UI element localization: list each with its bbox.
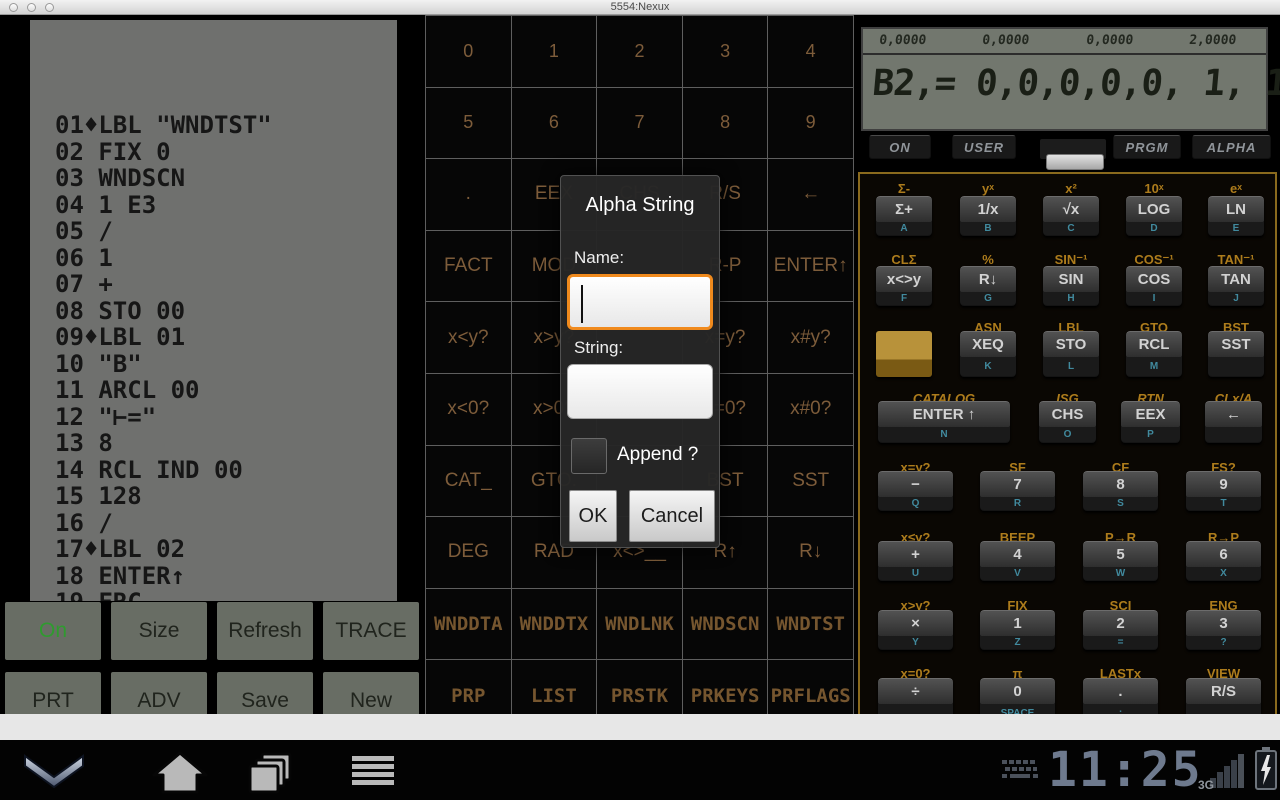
window-titlebar: 5554:Nexux: [0, 0, 1280, 15]
calc-key-eex[interactable]: EEXP: [1121, 401, 1180, 443]
program-line: 04 1 E3: [55, 192, 397, 219]
name-field-label: Name:: [574, 248, 624, 268]
calc-key-sub-label: [1208, 357, 1264, 376]
calc-key-7[interactable]: 7R: [980, 471, 1055, 511]
calc-key-sub-label: B: [960, 222, 1016, 235]
function-grid-key[interactable]: 3: [683, 16, 768, 87]
calc-key-label: 3: [1186, 610, 1261, 636]
calc-key-ln[interactable]: LNE: [1208, 196, 1264, 236]
calc-key-5[interactable]: 5W: [1083, 541, 1158, 581]
function-grid-key[interactable]: 4: [768, 16, 853, 87]
program-line: 08 STO 00: [55, 298, 397, 325]
calc-key-label: R↓: [960, 266, 1016, 292]
function-grid-key[interactable]: 0: [426, 16, 511, 87]
calc-key-sub-label: SPACE: [980, 704, 1055, 714]
program-line: 19 FRC: [55, 589, 397, 601]
calc-key-label: −: [878, 471, 953, 497]
calc-key--[interactable]: Σ+A: [876, 196, 932, 236]
calc-key-rcl[interactable]: RCLM: [1126, 331, 1182, 377]
program-line: 01♦LBL "WNDTST": [55, 112, 397, 139]
network-type-label: 3G: [1198, 778, 1214, 792]
lcd-stack-value: 0,0000: [1085, 33, 1134, 53]
calc-key-sub-label: T: [1186, 497, 1261, 510]
string-field-label: String:: [574, 338, 623, 358]
cancel-button[interactable]: Cancel: [629, 490, 715, 542]
dialog-title: Alpha String: [561, 194, 719, 217]
calc-key-label: 1/x: [960, 196, 1016, 222]
function-grid-key[interactable]: ←: [768, 159, 853, 230]
calculator-lcd: 0,00000,00000,00002,0000 B2,= 0,0,0,0,0,…: [861, 27, 1268, 131]
function-grid-key[interactable]: 2: [597, 16, 682, 87]
calc-key--[interactable]: ÷,: [878, 678, 953, 714]
calc-key-xeq[interactable]: XEQK: [960, 331, 1016, 377]
calc-key-2[interactable]: 2=: [1083, 610, 1158, 650]
back-icon[interactable]: [22, 750, 86, 790]
calc-key-label: LOG: [1126, 196, 1182, 222]
function-grid-key[interactable]: WNDDTA: [426, 589, 511, 660]
calc-key-label: EEX: [1121, 401, 1180, 427]
calc-key-label: SIN: [1043, 266, 1099, 292]
calc-key-sub-label: W: [1083, 567, 1158, 580]
calc-key--[interactable]: +U: [878, 541, 953, 581]
calc-key-3[interactable]: 3?: [1186, 610, 1261, 650]
program-line: 15 128: [55, 483, 397, 510]
function-grid-key[interactable]: LIST: [512, 660, 597, 714]
calc-key-sub-label: J: [1208, 292, 1264, 305]
program-line: 16 /: [55, 510, 397, 537]
calc-key-sub-label: ,: [878, 704, 953, 714]
calc-key--[interactable]: .:: [1083, 678, 1158, 714]
calc-key-sub-label: :: [1083, 704, 1158, 714]
calc-key-9[interactable]: 9T: [1186, 471, 1261, 511]
shift-function-label: eˣ: [1181, 181, 1280, 196]
calc-key-r-[interactable]: R↓G: [960, 266, 1016, 306]
printer-save-button[interactable]: Save: [217, 672, 313, 714]
program-line: 11 ARCL 00: [55, 377, 397, 404]
calc-key-label: 5: [1083, 541, 1158, 567]
calc-key-sub-label: D: [1126, 222, 1182, 235]
function-grid-key[interactable]: x<0?: [426, 374, 511, 445]
calc-key-0[interactable]: 0SPACE: [980, 678, 1055, 714]
function-grid-key[interactable]: x#y?: [768, 302, 853, 373]
calc-key-sub-label: V: [980, 567, 1055, 580]
calc-key-label: 6: [1186, 541, 1261, 567]
calculator-keypad: Σ-yˣx²10ˣeˣΣ+A1/xB√xCLOGDLNECLΣ%SIN⁻¹COS…: [858, 172, 1277, 714]
calc-key-sub-label: S: [1083, 497, 1158, 510]
function-grid-key[interactable]: .: [426, 159, 511, 230]
calc-key-r-s[interactable]: R/S: [1186, 678, 1261, 714]
printer-prt-button[interactable]: PRT: [5, 672, 101, 714]
calc-key-sub-label: U: [878, 567, 953, 580]
function-grid-key[interactable]: x<y?: [426, 302, 511, 373]
calc-key-8[interactable]: 8S: [1083, 471, 1158, 511]
on-button[interactable]: ON: [869, 135, 931, 159]
printer-size-button[interactable]: Size: [111, 602, 207, 660]
calc-key-sub-label: K: [960, 357, 1016, 376]
calc-key-chs[interactable]: CHSO: [1039, 401, 1096, 443]
function-grid-key[interactable]: 9: [768, 88, 853, 159]
calc-key-label: ←: [1205, 401, 1262, 427]
calc-key-label: TAN: [1208, 266, 1264, 292]
alpha-button[interactable]: ALPHA: [1192, 135, 1271, 159]
function-grid-key[interactable]: 5: [426, 88, 511, 159]
function-grid-key[interactable]: R↓: [768, 517, 853, 588]
calc-key--[interactable]: ×Y: [878, 610, 953, 650]
calc-key-sub-label: F: [876, 292, 932, 305]
string-input[interactable]: [567, 364, 713, 419]
recent-apps-icon[interactable]: [246, 750, 296, 796]
battery-charging-icon: [1254, 746, 1278, 792]
calc-key-tan[interactable]: TANJ: [1208, 266, 1264, 306]
calc-key-label: ENTER ↑: [878, 401, 1010, 427]
menu-icon[interactable]: [352, 756, 394, 788]
calc-key-6[interactable]: 6X: [1186, 541, 1261, 581]
calc-key-label: 8: [1083, 471, 1158, 497]
printer-adv-button[interactable]: ADV: [111, 672, 207, 714]
calc-key-label: 9: [1186, 471, 1261, 497]
emulator-window: 5554:Nexux 01♦LBL "WNDTST"02 FIX 003 WND…: [0, 0, 1280, 800]
keyboard-status-icon[interactable]: [1002, 760, 1040, 782]
calc-key-sub-label: =: [1083, 636, 1158, 649]
function-grid-key[interactable]: ENTER↑: [768, 231, 853, 302]
calc-key-label: R/S: [1186, 678, 1261, 704]
calc-key-label: STO: [1043, 331, 1099, 357]
calc-key-label: .: [1083, 678, 1158, 704]
calc-key-sub-label: C: [1043, 222, 1099, 235]
program-line: 02 FIX 0: [55, 139, 397, 166]
calc-key-label: 4: [980, 541, 1055, 567]
lcd-stack-value: 0,0000: [878, 33, 927, 53]
program-line: 14 RCL IND 00: [55, 457, 397, 484]
function-grid-key[interactable]: PRKEYS: [683, 660, 768, 714]
program-line: 03 WNDSCN: [55, 165, 397, 192]
calc-key-label: CHS: [1039, 401, 1096, 427]
program-line: 17♦LBL 02: [55, 536, 397, 563]
calc-key-label: SST: [1208, 331, 1264, 357]
calc-key-label: 1: [980, 610, 1055, 636]
calc-key-sub-label: Z: [980, 636, 1055, 649]
calc-key-sub-label: L: [1043, 357, 1099, 376]
program-line: 13 8: [55, 430, 397, 457]
calc-key-sto[interactable]: STOL: [1043, 331, 1099, 377]
calc-key-sub-label: E: [1208, 222, 1264, 235]
window-bottom-strip: [0, 714, 1280, 740]
calc-key-label: x<>y: [876, 266, 932, 292]
calc-key-sub-label: ?: [1186, 636, 1261, 649]
calc-key-label: 0: [980, 678, 1055, 704]
calc-key-label: +: [878, 541, 953, 567]
function-grid-key[interactable]: PRSTK: [597, 660, 682, 714]
calc-key-sub-label: X: [1186, 567, 1261, 580]
calc-key-sub-label: H: [1043, 292, 1099, 305]
calc-key-label: RCL: [1126, 331, 1182, 357]
function-grid-key[interactable]: 8: [683, 88, 768, 159]
name-input[interactable]: [567, 274, 713, 330]
calc-key-sub-label: Y: [878, 636, 953, 649]
calc-key-x-y[interactable]: x<>yF: [876, 266, 932, 306]
program-line: 09♦LBL 01: [55, 324, 397, 351]
function-grid-key[interactable]: x#0?: [768, 374, 853, 445]
user-button[interactable]: USER: [952, 135, 1016, 159]
function-grid-key[interactable]: DEG: [426, 517, 511, 588]
calc-key-sst[interactable]: SST: [1208, 331, 1264, 377]
app-area: 01♦LBL "WNDTST"02 FIX 003 WNDSCN04 1 E30…: [0, 15, 1280, 714]
calc-key--x[interactable]: √xC: [1043, 196, 1099, 236]
calc-key-4[interactable]: 4V: [980, 541, 1055, 581]
calc-key-enter-[interactable]: ENTER ↑N: [878, 401, 1010, 443]
program-line: 10 "B": [55, 351, 397, 378]
calc-key-sub-label: M: [1126, 357, 1182, 376]
function-grid-key[interactable]: 7: [597, 88, 682, 159]
calc-key-sub-label: [1205, 427, 1262, 442]
append-checkbox-label: Append ?: [617, 444, 698, 466]
calc-key-label: 2: [1083, 610, 1158, 636]
calc-key-label: LN: [1208, 196, 1264, 222]
calc-key-label: Σ+: [876, 196, 932, 222]
status-clock: 11:25: [1048, 742, 1203, 798]
calc-key-sub-label: A: [876, 222, 932, 235]
alpha-string-dialog: Alpha String Name: String: Append ? OK C…: [560, 175, 720, 548]
calc-key-log[interactable]: LOGD: [1126, 196, 1182, 236]
signal-strength-icon: 3G: [1196, 752, 1248, 792]
printer-controls-row-2: PRTADVSaveNew: [5, 672, 419, 714]
ok-button[interactable]: OK: [569, 490, 617, 542]
calc-key-label: XEQ: [960, 331, 1016, 357]
calculator-panel: 0,00000,00000,00002,0000 B2,= 0,0,0,0,0,…: [855, 15, 1280, 714]
calc-key-label: ÷: [878, 678, 953, 704]
calc-key-sub-label: R: [980, 497, 1055, 510]
function-grid-key[interactable]: 6: [512, 88, 597, 159]
calc-key-sub-label: O: [1039, 427, 1096, 442]
calc-key-sub-label: G: [960, 292, 1016, 305]
calc-key-sin[interactable]: SINH: [1043, 266, 1099, 306]
mode-indicator-pill: [1046, 154, 1104, 170]
calc-key-1-x[interactable]: 1/xB: [960, 196, 1016, 236]
lcd-stack-value: 2,0000: [1188, 33, 1237, 53]
function-grid-key[interactable]: 1: [512, 16, 597, 87]
function-grid-key[interactable]: PRFLAGS: [768, 660, 853, 714]
program-line: 05 /: [55, 218, 397, 245]
android-navbar: 11:25 3G: [0, 740, 1280, 800]
calc-key-sub-label: P: [1121, 427, 1180, 442]
lcd-stack-row: 0,00000,00000,00002,0000: [863, 29, 1266, 55]
calc-key-1[interactable]: 1Z: [980, 610, 1055, 650]
function-grid-key[interactable]: WNDLNK: [597, 589, 682, 660]
program-listing: 01♦LBL "WNDTST"02 FIX 003 WNDSCN04 1 E30…: [30, 20, 397, 601]
function-grid-key[interactable]: WNDSCN: [683, 589, 768, 660]
text-cursor: [581, 285, 583, 323]
calc-key-label: COS: [1126, 266, 1182, 292]
calc-key-sub-label: I: [1126, 292, 1182, 305]
lcd-main-text: B2,= 0,0,0,0,0, 1, 1,0,: [861, 55, 1268, 104]
printer-on-button[interactable]: On: [5, 602, 101, 660]
calc-key-sub-label: N: [878, 427, 1010, 442]
calc-key-label: ×: [878, 610, 953, 636]
shift-key[interactable]: [876, 331, 932, 377]
lcd-stack-value: 0,0000: [981, 33, 1030, 53]
printer-display: 01♦LBL "WNDTST"02 FIX 003 WNDSCN04 1 E30…: [30, 20, 397, 601]
calc-key-sub-label: Q: [878, 497, 953, 510]
function-grid-key[interactable]: WNDTST: [768, 589, 853, 660]
calc-key-cos[interactable]: COSI: [1126, 266, 1182, 306]
function-grid-key[interactable]: WNDDTX: [512, 589, 597, 660]
calc-key-label: √x: [1043, 196, 1099, 222]
program-line: 07 +: [55, 271, 397, 298]
program-line: 18 ENTER↑: [55, 563, 397, 590]
function-grid-key[interactable]: SST: [768, 446, 853, 517]
printer-new-button[interactable]: New: [323, 672, 419, 714]
program-line: 12 "⊢=": [55, 404, 397, 431]
window-title: 5554:Nexux: [0, 1, 1280, 13]
function-grid-key[interactable]: FACT: [426, 231, 511, 302]
calc-key--[interactable]: −Q: [878, 471, 953, 511]
calc-key-label: 7: [980, 471, 1055, 497]
program-line: 06 1: [55, 245, 397, 272]
function-grid-key[interactable]: CAT_: [426, 446, 511, 517]
prgm-button[interactable]: PRGM: [1113, 135, 1181, 159]
calc-key--[interactable]: ←: [1205, 401, 1262, 443]
function-grid-key[interactable]: PRP: [426, 660, 511, 714]
printer-controls-row-1: OnSizeRefreshTRACE: [5, 602, 419, 660]
home-icon[interactable]: [150, 750, 210, 796]
calc-key-sub-label: [1186, 704, 1261, 714]
printer-refresh-button[interactable]: Refresh: [217, 602, 313, 660]
printer-trace-button[interactable]: TRACE: [323, 602, 419, 660]
append-checkbox[interactable]: [571, 438, 607, 474]
